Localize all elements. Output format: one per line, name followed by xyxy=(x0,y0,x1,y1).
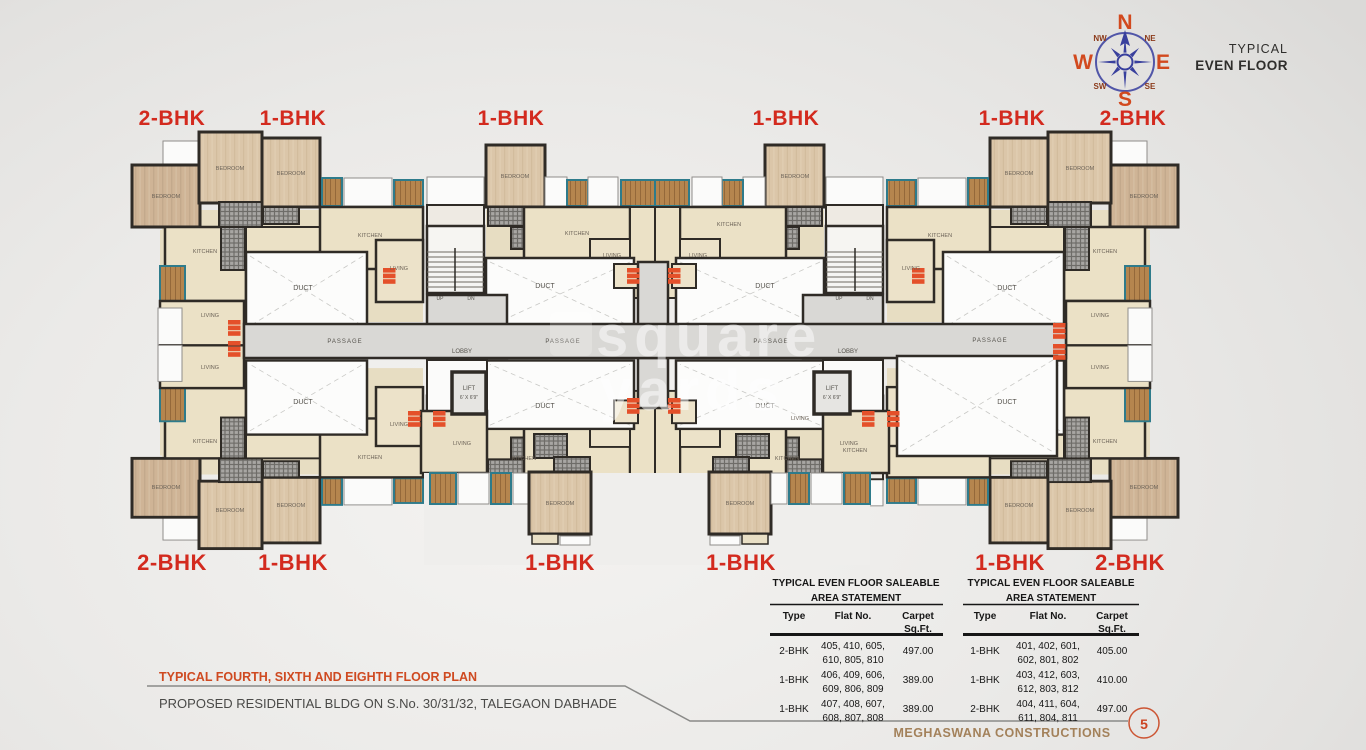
svg-text:EVEN FLOOR: EVEN FLOOR xyxy=(1195,58,1288,73)
svg-text:2-BHK: 2-BHK xyxy=(970,704,1000,715)
svg-text:DUCT: DUCT xyxy=(997,285,1017,292)
svg-text:BEDROOM: BEDROOM xyxy=(781,174,810,180)
svg-text:BEDROOM: BEDROOM xyxy=(216,508,245,514)
svg-text:KITCHEN: KITCHEN xyxy=(358,455,382,461)
svg-text:KITCHEN: KITCHEN xyxy=(1093,439,1117,445)
svg-text:1-BHK: 1-BHK xyxy=(779,675,809,686)
svg-text:SE: SE xyxy=(1145,82,1156,91)
svg-text:Carpet: Carpet xyxy=(1096,611,1128,622)
svg-text:DUCT: DUCT xyxy=(293,285,313,292)
svg-text:AREA STATEMENT: AREA STATEMENT xyxy=(1006,593,1096,604)
svg-text:602, 801, 802: 602, 801, 802 xyxy=(1017,655,1079,666)
svg-text:BEDROOM: BEDROOM xyxy=(1005,503,1034,509)
svg-text:401, 402, 601,: 401, 402, 601, xyxy=(1016,641,1080,652)
svg-text:DUCT: DUCT xyxy=(535,403,555,410)
svg-text:PROPOSED RESIDENTIAL BLDG ON S: PROPOSED RESIDENTIAL BLDG ON S.No. 30/31… xyxy=(159,696,617,711)
svg-text:yards: yards xyxy=(600,358,785,423)
svg-text:LIVING: LIVING xyxy=(390,266,408,272)
svg-text:UP: UP xyxy=(437,296,445,302)
svg-text:DN: DN xyxy=(866,296,874,302)
svg-text:MEGHASWANA CONSTRUCTIONS: MEGHASWANA CONSTRUCTIONS xyxy=(893,726,1110,740)
svg-text:BEDROOM: BEDROOM xyxy=(1066,166,1095,172)
svg-text:PASSAGE: PASSAGE xyxy=(327,339,362,345)
svg-text:TYPICAL EVEN FLOOR SALEABLE: TYPICAL EVEN FLOOR SALEABLE xyxy=(772,578,939,589)
svg-text:410.00: 410.00 xyxy=(1097,675,1128,686)
svg-text:Type: Type xyxy=(974,611,997,622)
svg-text:Carpet: Carpet xyxy=(902,611,934,622)
svg-text:6' X 6'9": 6' X 6'9" xyxy=(823,395,841,401)
svg-text:LIVING: LIVING xyxy=(791,416,809,422)
svg-text:DUCT: DUCT xyxy=(997,399,1017,406)
svg-text:612, 803, 812: 612, 803, 812 xyxy=(1017,684,1079,695)
svg-text:LIVING: LIVING xyxy=(201,313,219,319)
svg-text:KITCHEN: KITCHEN xyxy=(193,249,217,255)
svg-text:2-BHK: 2-BHK xyxy=(1095,550,1165,575)
svg-text:BEDROOM: BEDROOM xyxy=(1066,508,1095,514)
svg-text:NE: NE xyxy=(1144,34,1156,43)
svg-text:DUCT: DUCT xyxy=(535,283,555,290)
svg-text:LIFT: LIFT xyxy=(463,386,476,392)
svg-text:610, 805, 810: 610, 805, 810 xyxy=(822,655,884,666)
svg-text:KITCHEN: KITCHEN xyxy=(843,448,867,454)
svg-text:DUCT: DUCT xyxy=(755,283,775,290)
svg-text:BEDROOM: BEDROOM xyxy=(152,485,181,491)
svg-text:KITCHEN: KITCHEN xyxy=(358,233,382,239)
svg-text:497.00: 497.00 xyxy=(1097,704,1128,715)
svg-text:LIVING: LIVING xyxy=(1091,365,1109,371)
svg-text:UP: UP xyxy=(836,296,844,302)
svg-text:TYPICAL FOURTH, SIXTH AND EIGH: TYPICAL FOURTH, SIXTH AND EIGHTH FLOOR P… xyxy=(159,670,477,684)
svg-text:LIVING: LIVING xyxy=(689,253,707,259)
svg-text:KITCHEN: KITCHEN xyxy=(928,233,952,239)
svg-text:BEDROOM: BEDROOM xyxy=(1130,485,1159,491)
svg-text:W: W xyxy=(1073,51,1093,74)
svg-text:LIVING: LIVING xyxy=(453,441,471,447)
svg-text:TYPICAL: TYPICAL xyxy=(1229,42,1288,56)
svg-text:5: 5 xyxy=(1140,716,1148,732)
svg-text:1-BHK: 1-BHK xyxy=(970,675,1000,686)
svg-text:LIVING: LIVING xyxy=(201,365,219,371)
svg-text:S: S xyxy=(1118,88,1132,111)
svg-text:2-BHK: 2-BHK xyxy=(139,107,206,130)
svg-text:1-BHK: 1-BHK xyxy=(753,107,820,130)
svg-text:LIVING: LIVING xyxy=(603,253,621,259)
svg-text:1-BHK: 1-BHK xyxy=(258,550,328,575)
svg-text:AREA STATEMENT: AREA STATEMENT xyxy=(811,593,901,604)
svg-text:497.00: 497.00 xyxy=(903,646,934,657)
svg-text:Type: Type xyxy=(783,611,806,622)
svg-text:407, 408, 607,: 407, 408, 607, xyxy=(821,699,885,710)
svg-text:BEDROOM: BEDROOM xyxy=(277,503,306,509)
svg-text:KITCHEN: KITCHEN xyxy=(775,456,799,462)
svg-text:NW: NW xyxy=(1093,34,1107,43)
svg-text:2-BHK: 2-BHK xyxy=(779,646,809,657)
svg-text:SW: SW xyxy=(1094,82,1107,91)
svg-text:LIVING: LIVING xyxy=(902,266,920,272)
svg-text:608, 807, 808: 608, 807, 808 xyxy=(822,713,884,724)
svg-text:1-BHK: 1-BHK xyxy=(525,550,595,575)
svg-text:1-BHK: 1-BHK xyxy=(706,550,776,575)
svg-text:DN: DN xyxy=(467,296,475,302)
svg-text:403, 412, 603,: 403, 412, 603, xyxy=(1016,670,1080,681)
svg-text:LOBBY: LOBBY xyxy=(838,349,858,355)
svg-text:389.00: 389.00 xyxy=(903,704,934,715)
svg-text:E: E xyxy=(1156,51,1170,74)
svg-text:LIVING: LIVING xyxy=(1091,313,1109,319)
svg-text:1-BHK: 1-BHK xyxy=(260,107,327,130)
svg-text:389.00: 389.00 xyxy=(903,675,934,686)
svg-text:2-BHK: 2-BHK xyxy=(1100,107,1167,130)
svg-text:Flat No.: Flat No. xyxy=(835,611,872,622)
svg-text:KITCHEN: KITCHEN xyxy=(565,231,589,237)
svg-text:405, 410, 605,: 405, 410, 605, xyxy=(821,641,885,652)
svg-text:406, 409, 606,: 406, 409, 606, xyxy=(821,670,885,681)
svg-text:1-BHK: 1-BHK xyxy=(979,107,1046,130)
svg-text:404, 411, 604,: 404, 411, 604, xyxy=(1016,699,1079,710)
svg-text:1-BHK: 1-BHK xyxy=(779,704,809,715)
svg-text:Flat No.: Flat No. xyxy=(1030,611,1067,622)
svg-text:BEDROOM: BEDROOM xyxy=(546,501,575,507)
svg-text:KITCHEN: KITCHEN xyxy=(1093,249,1117,255)
svg-text:KITCHEN: KITCHEN xyxy=(193,439,217,445)
svg-text:1-BHK: 1-BHK xyxy=(478,107,545,130)
svg-text:BEDROOM: BEDROOM xyxy=(726,501,755,507)
svg-text:KITCHEN: KITCHEN xyxy=(717,222,741,228)
svg-text:BEDROOM: BEDROOM xyxy=(277,171,306,177)
svg-text:N: N xyxy=(1117,11,1132,34)
svg-text:BEDROOM: BEDROOM xyxy=(1130,194,1159,200)
svg-text:LIVING: LIVING xyxy=(840,441,858,447)
svg-text:LIFT: LIFT xyxy=(826,386,839,392)
svg-text:1-BHK: 1-BHK xyxy=(970,646,1000,657)
svg-text:TYPICAL EVEN FLOOR SALEABLE: TYPICAL EVEN FLOOR SALEABLE xyxy=(967,578,1134,589)
svg-text:KITCHEN: KITCHEN xyxy=(512,456,536,462)
svg-text:LIVING: LIVING xyxy=(390,422,408,428)
svg-text:DUCT: DUCT xyxy=(293,399,313,406)
svg-text:1-BHK: 1-BHK xyxy=(975,550,1045,575)
svg-text:6' X 6'9": 6' X 6'9" xyxy=(460,395,478,401)
svg-text:LOBBY: LOBBY xyxy=(452,349,472,355)
svg-text:611, 804, 811: 611, 804, 811 xyxy=(1018,713,1078,724)
svg-text:BEDROOM: BEDROOM xyxy=(1005,171,1034,177)
svg-text:BEDROOM: BEDROOM xyxy=(152,194,181,200)
svg-text:PASSAGE: PASSAGE xyxy=(972,338,1007,344)
svg-text:405.00: 405.00 xyxy=(1097,646,1128,657)
svg-text:609, 806, 809: 609, 806, 809 xyxy=(822,684,884,695)
svg-text:BEDROOM: BEDROOM xyxy=(501,174,530,180)
svg-text:BEDROOM: BEDROOM xyxy=(216,166,245,172)
svg-text:2-BHK: 2-BHK xyxy=(137,550,207,575)
